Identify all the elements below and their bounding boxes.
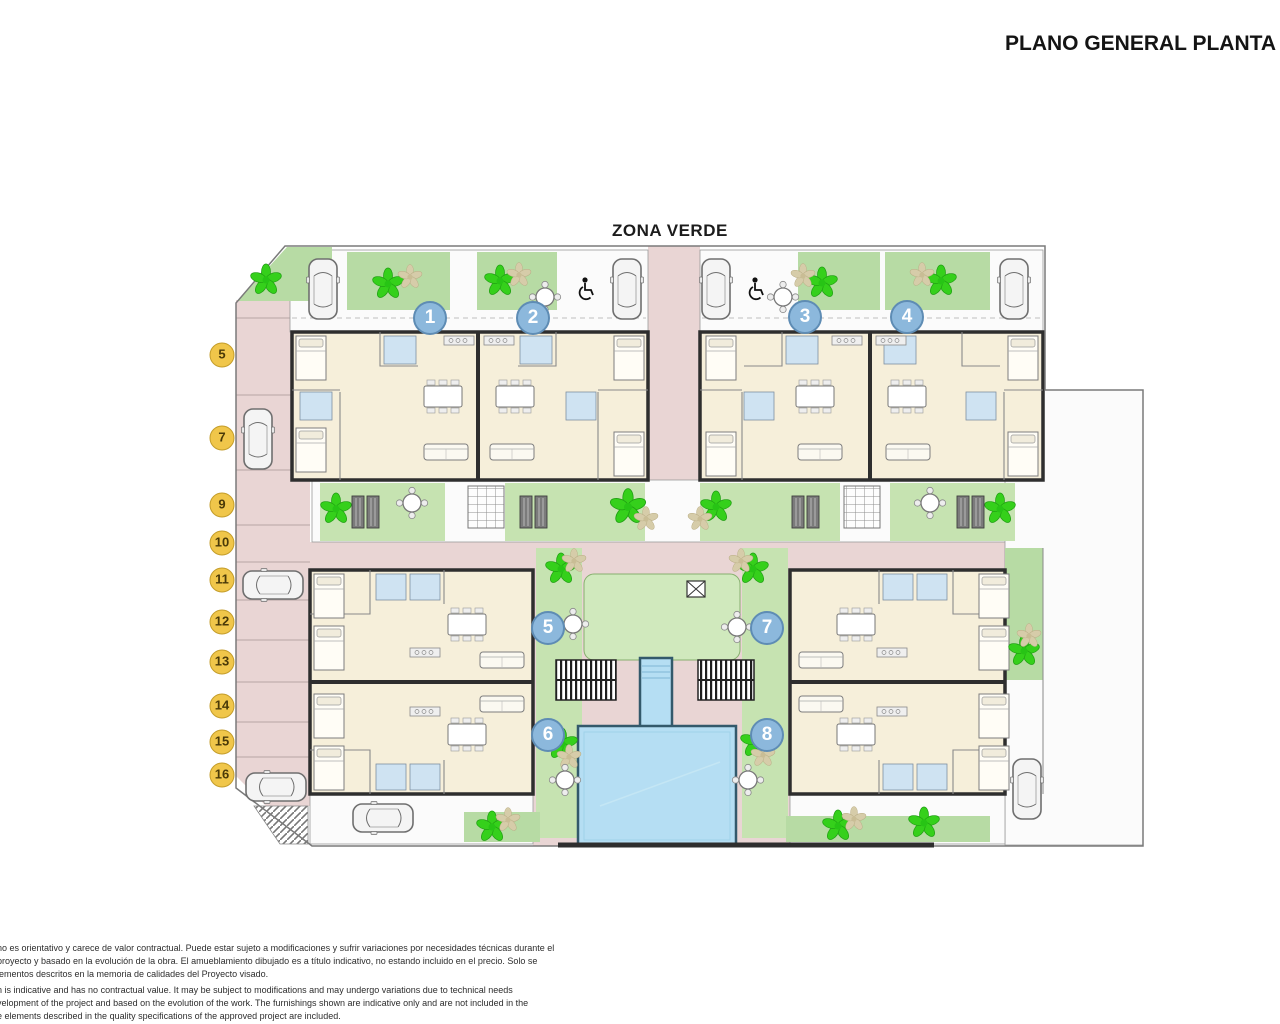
- legal-text-es: no es orientativo y carece de valor cont…: [0, 942, 554, 981]
- pool-area: [556, 658, 754, 846]
- crosswalk-hatch: [254, 806, 308, 844]
- unit-marker-4: 4: [890, 300, 924, 334]
- car-icon: [307, 259, 340, 319]
- parking-marker-16: 16: [210, 763, 235, 788]
- legal-line: proyecto y basado en la evolución de la …: [0, 955, 554, 968]
- car-icon: [998, 259, 1031, 319]
- car-icon: [246, 771, 306, 804]
- sun-lounger-icon: [957, 496, 969, 528]
- car-icon: [611, 259, 644, 319]
- block-units-1-2: [292, 332, 648, 480]
- parking-marker-15: 15: [210, 730, 235, 755]
- parking-marker-11: 11: [210, 568, 235, 593]
- legal-line: velopment of the project and based on th…: [0, 997, 528, 1010]
- sun-lounger-icon: [352, 496, 364, 528]
- unit-marker-1: 1: [413, 301, 447, 335]
- pool: [578, 726, 736, 846]
- car-icon: [243, 569, 303, 602]
- sun-lounger-icon: [367, 496, 379, 528]
- unit-marker-8: 8: [750, 718, 784, 752]
- unit-marker-7: 7: [750, 611, 784, 645]
- parking-marker-14: 14: [210, 694, 235, 719]
- unit-marker-5: 5: [531, 611, 565, 645]
- parking-marker-5: 5: [210, 343, 235, 368]
- parking-marker-7: 7: [210, 426, 235, 451]
- sun-lounger-icon: [972, 496, 984, 528]
- unit-marker-3: 3: [788, 300, 822, 334]
- legal-line: e elements described in the quality spec…: [0, 1010, 528, 1023]
- parking-marker-9: 9: [210, 493, 235, 518]
- site-plan: [0, 0, 1280, 1024]
- sun-lounger-icon: [807, 496, 819, 528]
- car-icon: [1011, 759, 1044, 819]
- car-icon: [700, 259, 733, 319]
- block-units-7-8: [790, 570, 1009, 794]
- zona-verde-label: ZONA VERDE: [612, 221, 728, 241]
- floor-plan-page: PLANO GENERAL PLANTA B ZONA VERDE no es …: [0, 0, 1280, 1024]
- page-title: PLANO GENERAL PLANTA B: [1005, 32, 1280, 56]
- block-units-5-6: [310, 570, 533, 794]
- unit-marker-6: 6: [531, 718, 565, 752]
- parking-marker-12: 12: [210, 610, 235, 635]
- parking-marker-10: 10: [210, 531, 235, 556]
- legal-line: lementos descritos en la memoria de cali…: [0, 968, 554, 981]
- legal-line: n is indicative and has no contractual v…: [0, 984, 528, 997]
- car-icon: [353, 802, 413, 835]
- legal-line: no es orientativo y carece de valor cont…: [0, 942, 554, 955]
- courtyard-lawn: [584, 574, 740, 660]
- sun-lounger-icon: [520, 496, 532, 528]
- pool-entry: [640, 658, 672, 728]
- block-units-3-4: [700, 332, 1043, 480]
- legal-text-en: n is indicative and has no contractual v…: [0, 984, 528, 1023]
- car-icon: [242, 409, 275, 469]
- sun-lounger-icon: [792, 496, 804, 528]
- parking-marker-13: 13: [210, 650, 235, 675]
- unit-marker-2: 2: [516, 301, 550, 335]
- sun-lounger-icon: [535, 496, 547, 528]
